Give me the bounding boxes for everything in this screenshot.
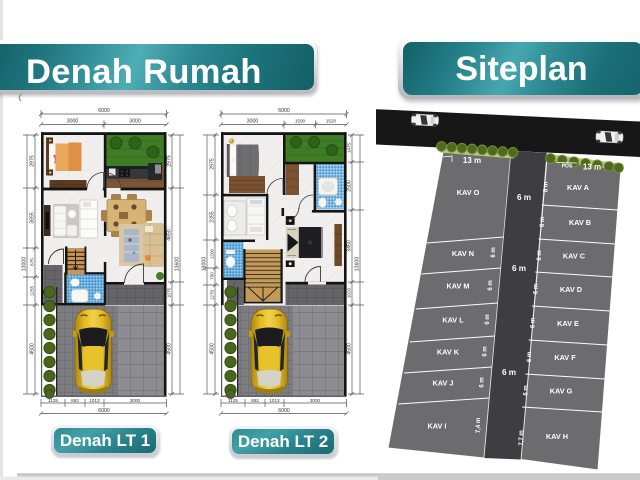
svg-text:2355: 2355 bbox=[210, 211, 216, 223]
svg-text:1200: 1200 bbox=[210, 248, 215, 259]
svg-text:1075: 1075 bbox=[167, 287, 172, 298]
svg-text:1125: 1125 bbox=[228, 398, 238, 403]
svg-text:KAV G: KAV G bbox=[550, 387, 573, 396]
svg-text:KAV M: KAV M bbox=[447, 282, 470, 291]
svg-text:13600: 13600 bbox=[355, 257, 361, 272]
svg-text:2975: 2975 bbox=[167, 155, 173, 167]
svg-text:13 m: 13 m bbox=[583, 163, 601, 172]
svg-text:1025: 1025 bbox=[347, 287, 352, 298]
svg-text:6 m: 6 m bbox=[502, 368, 516, 377]
svg-text:862: 862 bbox=[71, 398, 79, 403]
svg-text:6000: 6000 bbox=[98, 408, 110, 414]
svg-text:6 m: 6 m bbox=[517, 193, 531, 202]
svg-text:KAV I: KAV I bbox=[428, 422, 447, 431]
svg-text:6 m: 6 m bbox=[537, 250, 543, 260]
svg-text:8 m: 8 m bbox=[544, 182, 550, 192]
svg-text:6 m: 6 m bbox=[482, 346, 488, 356]
svg-text:KAV E: KAV E bbox=[557, 319, 579, 328]
svg-text:1013: 1013 bbox=[269, 398, 280, 403]
svg-text:4650: 4650 bbox=[167, 229, 173, 241]
svg-text:1255: 1255 bbox=[30, 285, 35, 296]
svg-text:1500: 1500 bbox=[295, 119, 306, 124]
svg-text:6 m: 6 m bbox=[512, 264, 526, 273]
svg-text:KAV D: KAV D bbox=[560, 285, 582, 294]
svg-text:7,4 m: 7,4 m bbox=[476, 418, 482, 433]
svg-text:KAV C: KAV C bbox=[563, 252, 586, 261]
svg-text:13 m: 13 m bbox=[463, 156, 481, 165]
svg-text:6000: 6000 bbox=[278, 108, 290, 114]
svg-text:4500: 4500 bbox=[30, 343, 36, 355]
svg-text:3000: 3000 bbox=[130, 398, 141, 403]
svg-text:4500: 4500 bbox=[167, 343, 173, 355]
svg-text:2975: 2975 bbox=[210, 158, 216, 170]
svg-text:KAV A: KAV A bbox=[567, 183, 590, 192]
svg-text:862: 862 bbox=[251, 398, 259, 403]
svg-text:3000: 3000 bbox=[129, 119, 141, 125]
svg-text:6 m: 6 m bbox=[488, 280, 494, 290]
svg-text:6 m: 6 m bbox=[491, 247, 497, 257]
svg-text:KAV N: KAV N bbox=[452, 249, 474, 258]
svg-text:13000: 13000 bbox=[202, 257, 208, 272]
svg-text:6 m: 6 m bbox=[530, 318, 536, 328]
svg-text:7,7 m: 7,7 m bbox=[519, 430, 525, 445]
svg-text:1520: 1520 bbox=[326, 119, 337, 124]
svg-text:675: 675 bbox=[30, 258, 35, 266]
svg-text:1013: 1013 bbox=[89, 398, 100, 403]
svg-text:KAV K: KAV K bbox=[437, 348, 460, 357]
svg-text:13000: 13000 bbox=[22, 257, 28, 272]
svg-text:6 m: 6 m bbox=[480, 377, 486, 387]
svg-text:KAV O: KAV O bbox=[457, 188, 480, 197]
svg-text:6000: 6000 bbox=[98, 108, 110, 114]
svg-text:3000: 3000 bbox=[310, 398, 321, 403]
svg-text:KAV F: KAV F bbox=[554, 353, 576, 362]
svg-text:3000: 3000 bbox=[247, 119, 259, 125]
svg-text:2500: 2500 bbox=[347, 180, 353, 192]
svg-text:13600: 13600 bbox=[175, 257, 181, 272]
svg-text:1270: 1270 bbox=[210, 289, 215, 300]
svg-text:6 m: 6 m bbox=[524, 385, 530, 395]
svg-text:KAV L: KAV L bbox=[442, 316, 464, 325]
svg-text:KAV H: KAV H bbox=[546, 432, 568, 441]
svg-text:POS: POS bbox=[562, 164, 573, 170]
svg-text:4500: 4500 bbox=[210, 343, 216, 355]
svg-text:2975: 2975 bbox=[30, 155, 36, 167]
svg-text:6 m: 6 m bbox=[540, 217, 546, 227]
svg-text:4500: 4500 bbox=[347, 343, 353, 355]
svg-text:3655: 3655 bbox=[30, 212, 36, 224]
svg-text:6 m: 6 m bbox=[485, 314, 491, 324]
svg-text:6 m: 6 m bbox=[534, 284, 540, 294]
svg-text:700: 700 bbox=[210, 272, 215, 280]
svg-text:KAV B: KAV B bbox=[569, 218, 591, 227]
svg-text:KAV J: KAV J bbox=[433, 379, 454, 388]
svg-text:3450: 3450 bbox=[347, 240, 353, 252]
svg-text:3000: 3000 bbox=[67, 119, 79, 125]
svg-text:1125: 1125 bbox=[48, 398, 58, 403]
svg-text:1475: 1475 bbox=[347, 142, 352, 153]
svg-text:6000: 6000 bbox=[278, 408, 290, 414]
svg-text:6 m: 6 m bbox=[527, 352, 533, 362]
